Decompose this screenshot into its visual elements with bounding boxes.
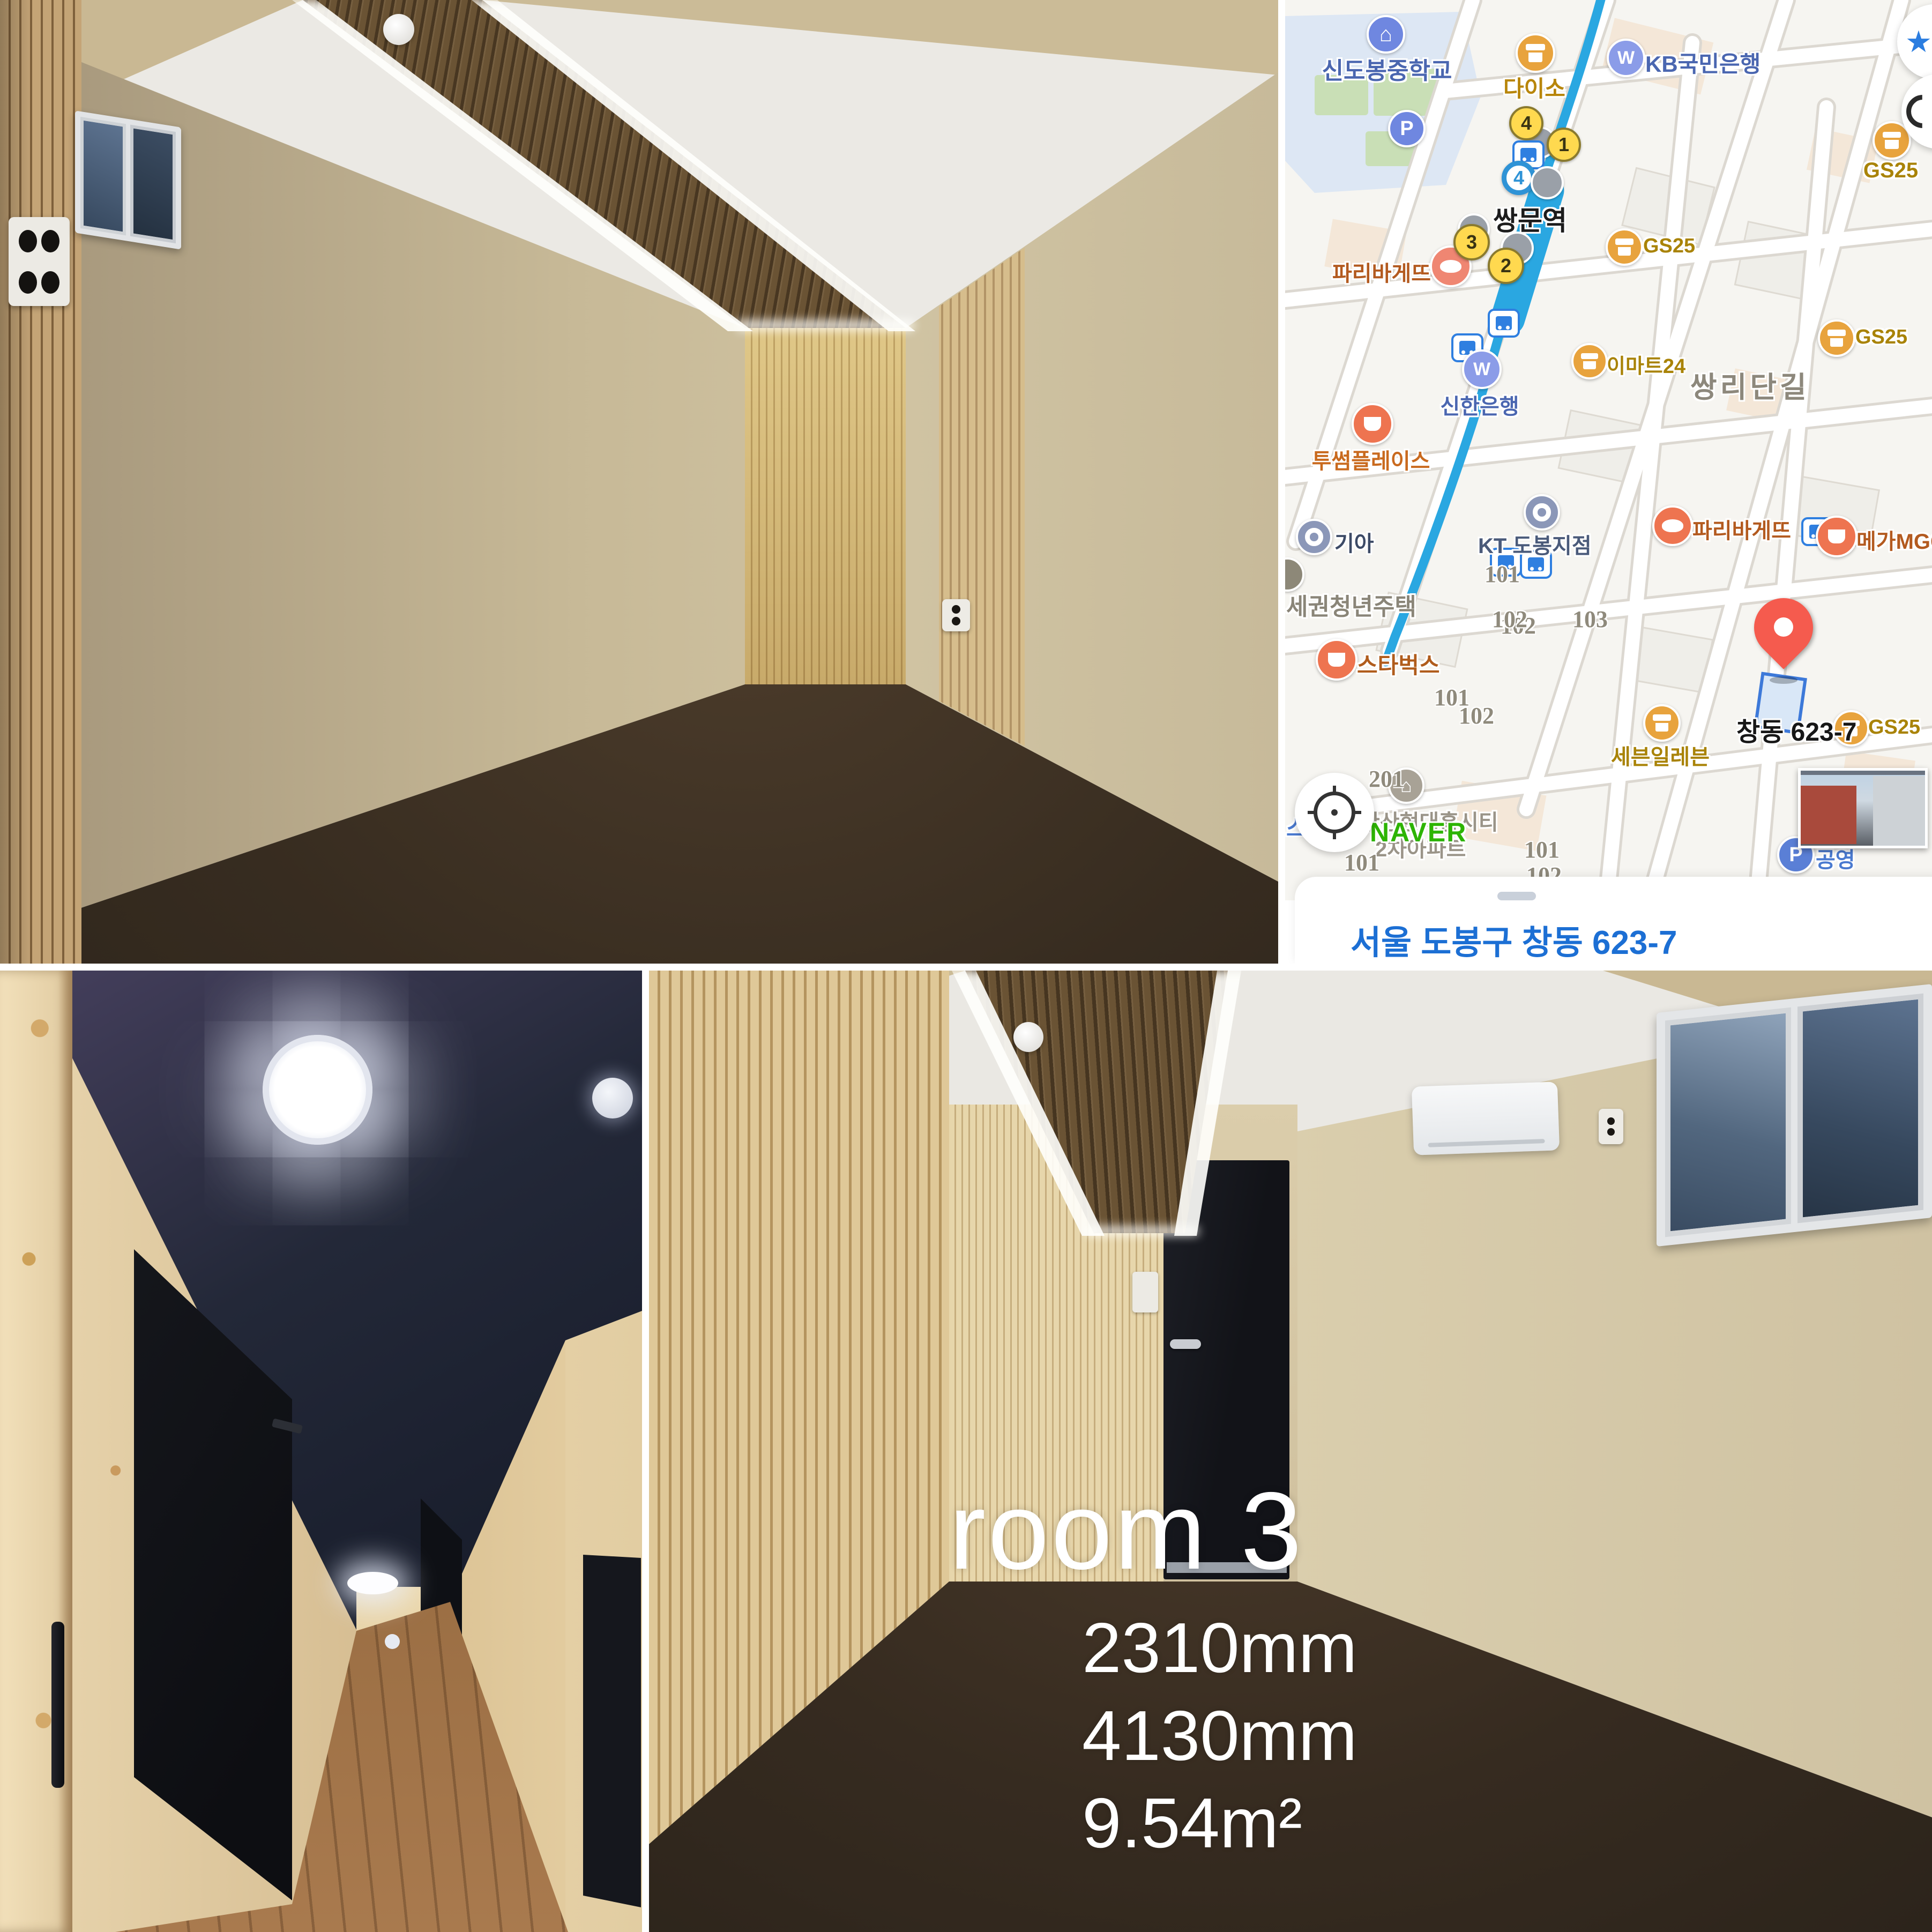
exit-badge-1: 1 xyxy=(1547,128,1581,162)
parcel-number: 201 xyxy=(1369,765,1404,793)
destination-pin xyxy=(1751,598,1816,689)
window xyxy=(1657,984,1932,1247)
poi-paris-baguette-west[interactable]: 파리바게뜨 xyxy=(1332,256,1431,287)
far-wall-slats xyxy=(745,328,906,684)
icon-shape xyxy=(1827,330,1845,335)
socket xyxy=(952,617,960,625)
icon-shape xyxy=(1440,260,1462,273)
icon-shape xyxy=(1830,338,1844,347)
icon-shape xyxy=(1615,238,1633,244)
icon-shape xyxy=(1655,723,1669,732)
naver-logo: NAVER xyxy=(1370,817,1467,848)
drag-handle[interactable] xyxy=(1497,892,1536,900)
exit-badge-4: 4 xyxy=(1509,106,1543,140)
door-handle xyxy=(1170,1339,1201,1349)
parking-glyph: P xyxy=(1400,117,1413,140)
kt-icon xyxy=(1524,494,1560,531)
ac-vent xyxy=(1428,1139,1545,1147)
gs25-store-icon xyxy=(1818,319,1855,357)
seven-eleven-store-icon xyxy=(1643,704,1681,742)
poi-ssangmun-station[interactable]: 쌍문역 xyxy=(1493,199,1567,238)
icon-shape xyxy=(1828,529,1845,543)
twosome-cup-icon xyxy=(1352,403,1393,445)
icon-shape xyxy=(1662,519,1683,532)
window-pane xyxy=(1665,1008,1791,1237)
thumb-wires xyxy=(1801,771,1925,775)
door-handle-bar xyxy=(51,1622,64,1788)
mega-mgc-cup-icon xyxy=(1816,516,1858,557)
socket xyxy=(41,230,59,252)
icon-shape xyxy=(1533,503,1551,521)
smoke-detector xyxy=(383,14,414,45)
poi-gs25-east[interactable]: GS25 xyxy=(1855,326,1907,349)
parcel-number: 101 xyxy=(1524,836,1560,863)
window-pane xyxy=(1797,994,1923,1224)
starbucks-cup-icon xyxy=(1316,639,1357,681)
icon-shape xyxy=(1583,361,1596,370)
window-pane xyxy=(130,125,176,243)
poi-marker-label: 창동 623-7 xyxy=(1736,711,1856,748)
icon-shape xyxy=(1883,132,1901,138)
icon-shape xyxy=(1885,140,1899,149)
parcel-number: 101 xyxy=(1344,849,1379,876)
parcel-number: 103 xyxy=(1572,606,1608,633)
icon-shape xyxy=(1328,653,1345,666)
poi-gs25-south[interactable]: GS25 xyxy=(1868,716,1920,739)
light-switch xyxy=(1132,1272,1158,1312)
map-panel[interactable]: ⌂ P W W P ⌂ 4 1 4 xyxy=(1285,0,1932,964)
outlet xyxy=(1599,1109,1623,1144)
poi-mega-mgc[interactable]: 메가MGC xyxy=(1856,524,1932,555)
poi-kia[interactable]: 기아 xyxy=(1334,526,1374,557)
transfer-icon xyxy=(1531,166,1564,199)
bottom-sheet[interactable]: 서울 도봉구 창동 623-7 xyxy=(1295,877,1932,964)
poi-daiso[interactable]: 다이소 xyxy=(1497,71,1572,103)
current-location-button[interactable] xyxy=(1295,773,1374,852)
room-title-overlay: room 3 xyxy=(949,1468,1304,1594)
gs25-store-icon xyxy=(1606,228,1643,266)
poi-kb-kookmin-bank[interactable]: KB국민은행 xyxy=(1645,46,1761,79)
shinhan-bank-icon: W xyxy=(1462,349,1502,389)
icon-shape xyxy=(1526,44,1545,50)
socket xyxy=(1607,1117,1615,1125)
icon-shape xyxy=(1618,247,1631,256)
poi-emart24[interactable]: 이마트24 xyxy=(1607,349,1685,379)
parcel-number: 102 xyxy=(1459,702,1494,729)
thumb-building xyxy=(1801,786,1856,844)
target-icon xyxy=(1314,792,1355,833)
room-dimension-length: 4130mm xyxy=(1082,1695,1357,1776)
emart24-store-icon xyxy=(1571,343,1608,379)
sensor-far xyxy=(385,1634,400,1649)
icon-shape xyxy=(1653,714,1670,720)
poi-kt-dobong-branch[interactable]: KT 도봉지점 xyxy=(1478,528,1592,560)
socket xyxy=(952,605,960,614)
school-icon: ⌂ xyxy=(1367,15,1405,54)
led-cove xyxy=(1086,1227,1198,1235)
icon-shape xyxy=(1364,417,1381,430)
phone-icon xyxy=(1906,95,1932,128)
sensor-dome xyxy=(592,1078,633,1118)
address-text: 서울 도봉구 창동 623-7 xyxy=(1351,915,1677,964)
poi-paris-baguette-east[interactable]: 파리바게뜨 xyxy=(1692,513,1791,544)
poi-starbucks[interactable]: 스타벅스 xyxy=(1357,647,1440,680)
poi-youth-housing: 세권청년주택 xyxy=(1286,587,1416,622)
poi-sindobong-middle-school[interactable]: 신도봉중학교 xyxy=(1315,51,1459,86)
window-pane xyxy=(80,117,126,235)
parking-icon: P xyxy=(1388,110,1426,147)
photo-room-3: room 3 2310mm 4130mm 9.54m² xyxy=(649,971,1932,1932)
photo-room-hallway xyxy=(0,0,1278,964)
streetview-thumbnail[interactable] xyxy=(1798,768,1928,848)
slat-pillar xyxy=(0,0,81,964)
air-conditioner xyxy=(1412,1081,1560,1155)
exit-badge-3: 3 xyxy=(1453,224,1490,260)
photo-corridor xyxy=(0,971,642,1932)
parcel-number: 101 xyxy=(1485,561,1520,588)
star-icon: ★ xyxy=(1905,24,1932,59)
icon-shape xyxy=(1528,53,1542,62)
exit-badge-2: 2 xyxy=(1488,248,1524,284)
daiso-cart-icon xyxy=(1516,33,1555,73)
kia-icon xyxy=(1296,519,1332,555)
socket xyxy=(19,271,37,294)
won-glyph: W xyxy=(1473,359,1490,380)
poi-twosome-place[interactable]: 투썸플레이스 xyxy=(1301,444,1441,475)
icon-shape xyxy=(1581,353,1598,359)
socket xyxy=(1607,1128,1615,1136)
room-dimension-area: 9.54m² xyxy=(1082,1782,1302,1863)
parcel-number: 102 xyxy=(1492,606,1527,633)
paris-baguette-icon xyxy=(1652,505,1693,546)
smoke-detector xyxy=(1013,1022,1043,1052)
icon-shape xyxy=(1305,528,1323,546)
kb-bank-icon: W xyxy=(1607,39,1645,77)
window xyxy=(75,110,181,249)
poi-seven-eleven[interactable]: 세븐일레븐 xyxy=(1607,740,1714,771)
thumb-building xyxy=(1873,776,1925,847)
outlet-panel xyxy=(9,217,70,306)
ceiling-light-main xyxy=(263,1035,372,1145)
socket xyxy=(41,271,59,294)
ceiling-light-far xyxy=(347,1572,398,1594)
left-plywood-pillar xyxy=(0,971,72,1932)
led-cove xyxy=(737,320,914,330)
poi-gs25-center[interactable]: GS25 xyxy=(1643,235,1695,258)
socket xyxy=(19,230,37,252)
outlet xyxy=(942,599,970,631)
poi-shinhan-bank[interactable]: 신한은행 xyxy=(1429,389,1531,420)
poi-gs25-northeast[interactable]: GS25 xyxy=(1843,159,1932,183)
won-glyph: W xyxy=(1617,48,1635,69)
bus-stop-icon xyxy=(1488,309,1520,338)
room-dimension-width: 2310mm xyxy=(1082,1607,1357,1688)
poi-ssangridan-gil: 쌍리단길 xyxy=(1690,363,1810,406)
school-glyph: ⌂ xyxy=(1379,23,1392,47)
